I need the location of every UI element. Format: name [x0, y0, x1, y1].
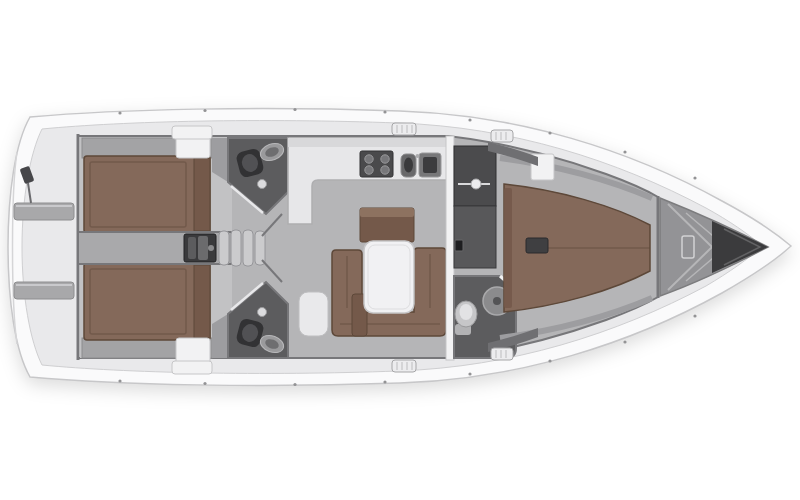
hanging-wardrobe	[454, 146, 496, 206]
forward-head-shower-drain	[493, 297, 501, 305]
locker-latch	[455, 240, 463, 251]
companionway-step-3	[243, 230, 253, 266]
aft-cabin-port-berth-foot	[194, 158, 210, 231]
companionway-step-2	[231, 230, 241, 266]
deck-hatch-mid-starboard	[392, 360, 416, 372]
locker-lower	[454, 206, 496, 268]
aft-head-port-shower	[258, 180, 267, 189]
deck-hatch-fwd-starboard	[491, 348, 513, 360]
salon-table	[364, 241, 414, 313]
aft-cabin-starboard-berth	[84, 263, 210, 340]
deck-box-aft-starboard	[172, 361, 212, 374]
stove-burner-3	[365, 166, 373, 174]
forward-head-toilet-seat	[460, 304, 473, 320]
aft-cabin-starboard-berth-foot	[194, 265, 210, 338]
aft-head-starboard-shower	[258, 308, 267, 317]
galley-faucet	[416, 154, 420, 158]
deck-hatch-mid-port	[392, 123, 416, 135]
yacht-floor-plan	[0, 0, 800, 500]
deck-hatch-fwd-port	[491, 130, 513, 142]
engine-part-2	[198, 236, 208, 260]
main-bulkhead	[446, 136, 454, 360]
stove-burner-4	[381, 166, 389, 174]
stove-burner-1	[365, 155, 373, 163]
forward-berth-step-box	[526, 238, 548, 253]
galley-upper-cabinet	[288, 138, 450, 147]
companionway-step-4	[255, 231, 265, 265]
yacht-floor-plan-canvas	[0, 0, 800, 500]
salon-sideboard-top	[360, 208, 414, 217]
stove-burner-2	[381, 155, 389, 163]
aft-cabin-port	[80, 128, 232, 233]
boat	[8, 108, 791, 386]
salon-pouf	[299, 292, 328, 336]
galley-sink-square-basin	[423, 157, 437, 173]
engine-part-1	[188, 237, 196, 259]
aft-cabin-port-berth	[84, 156, 210, 233]
forward-berth-headboard	[504, 188, 512, 308]
aft-cabin-starboard	[80, 262, 232, 368]
deck-box-aft-port	[172, 126, 212, 139]
galley-sink-round-basin	[404, 158, 413, 173]
hanging-rod-knob	[471, 179, 481, 189]
engine-part-3	[208, 245, 214, 251]
companionway-step-1	[219, 231, 229, 265]
